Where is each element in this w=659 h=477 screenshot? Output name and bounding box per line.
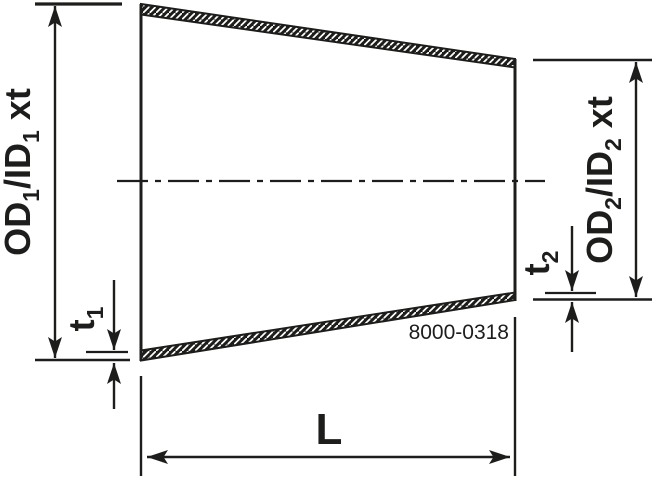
- t2-label: t2: [516, 251, 563, 276]
- technical-drawing-canvas: OD1/ID1xt t1 OD2/ID2xt t2 L 8000-0318: [0, 0, 659, 477]
- t1-label: t1: [61, 306, 108, 331]
- part-number: 8000-0318: [409, 321, 509, 344]
- reducer-top-wall-section: [141, 4, 515, 68]
- od1-label: OD1/ID1xt: [0, 88, 44, 256]
- reducer-drawing: OD1/ID1xt t1 OD2/ID2xt t2 L 8000-0318: [0, 0, 659, 477]
- od2-label: OD2/ID2xt: [579, 96, 626, 264]
- l-label: L: [316, 405, 343, 454]
